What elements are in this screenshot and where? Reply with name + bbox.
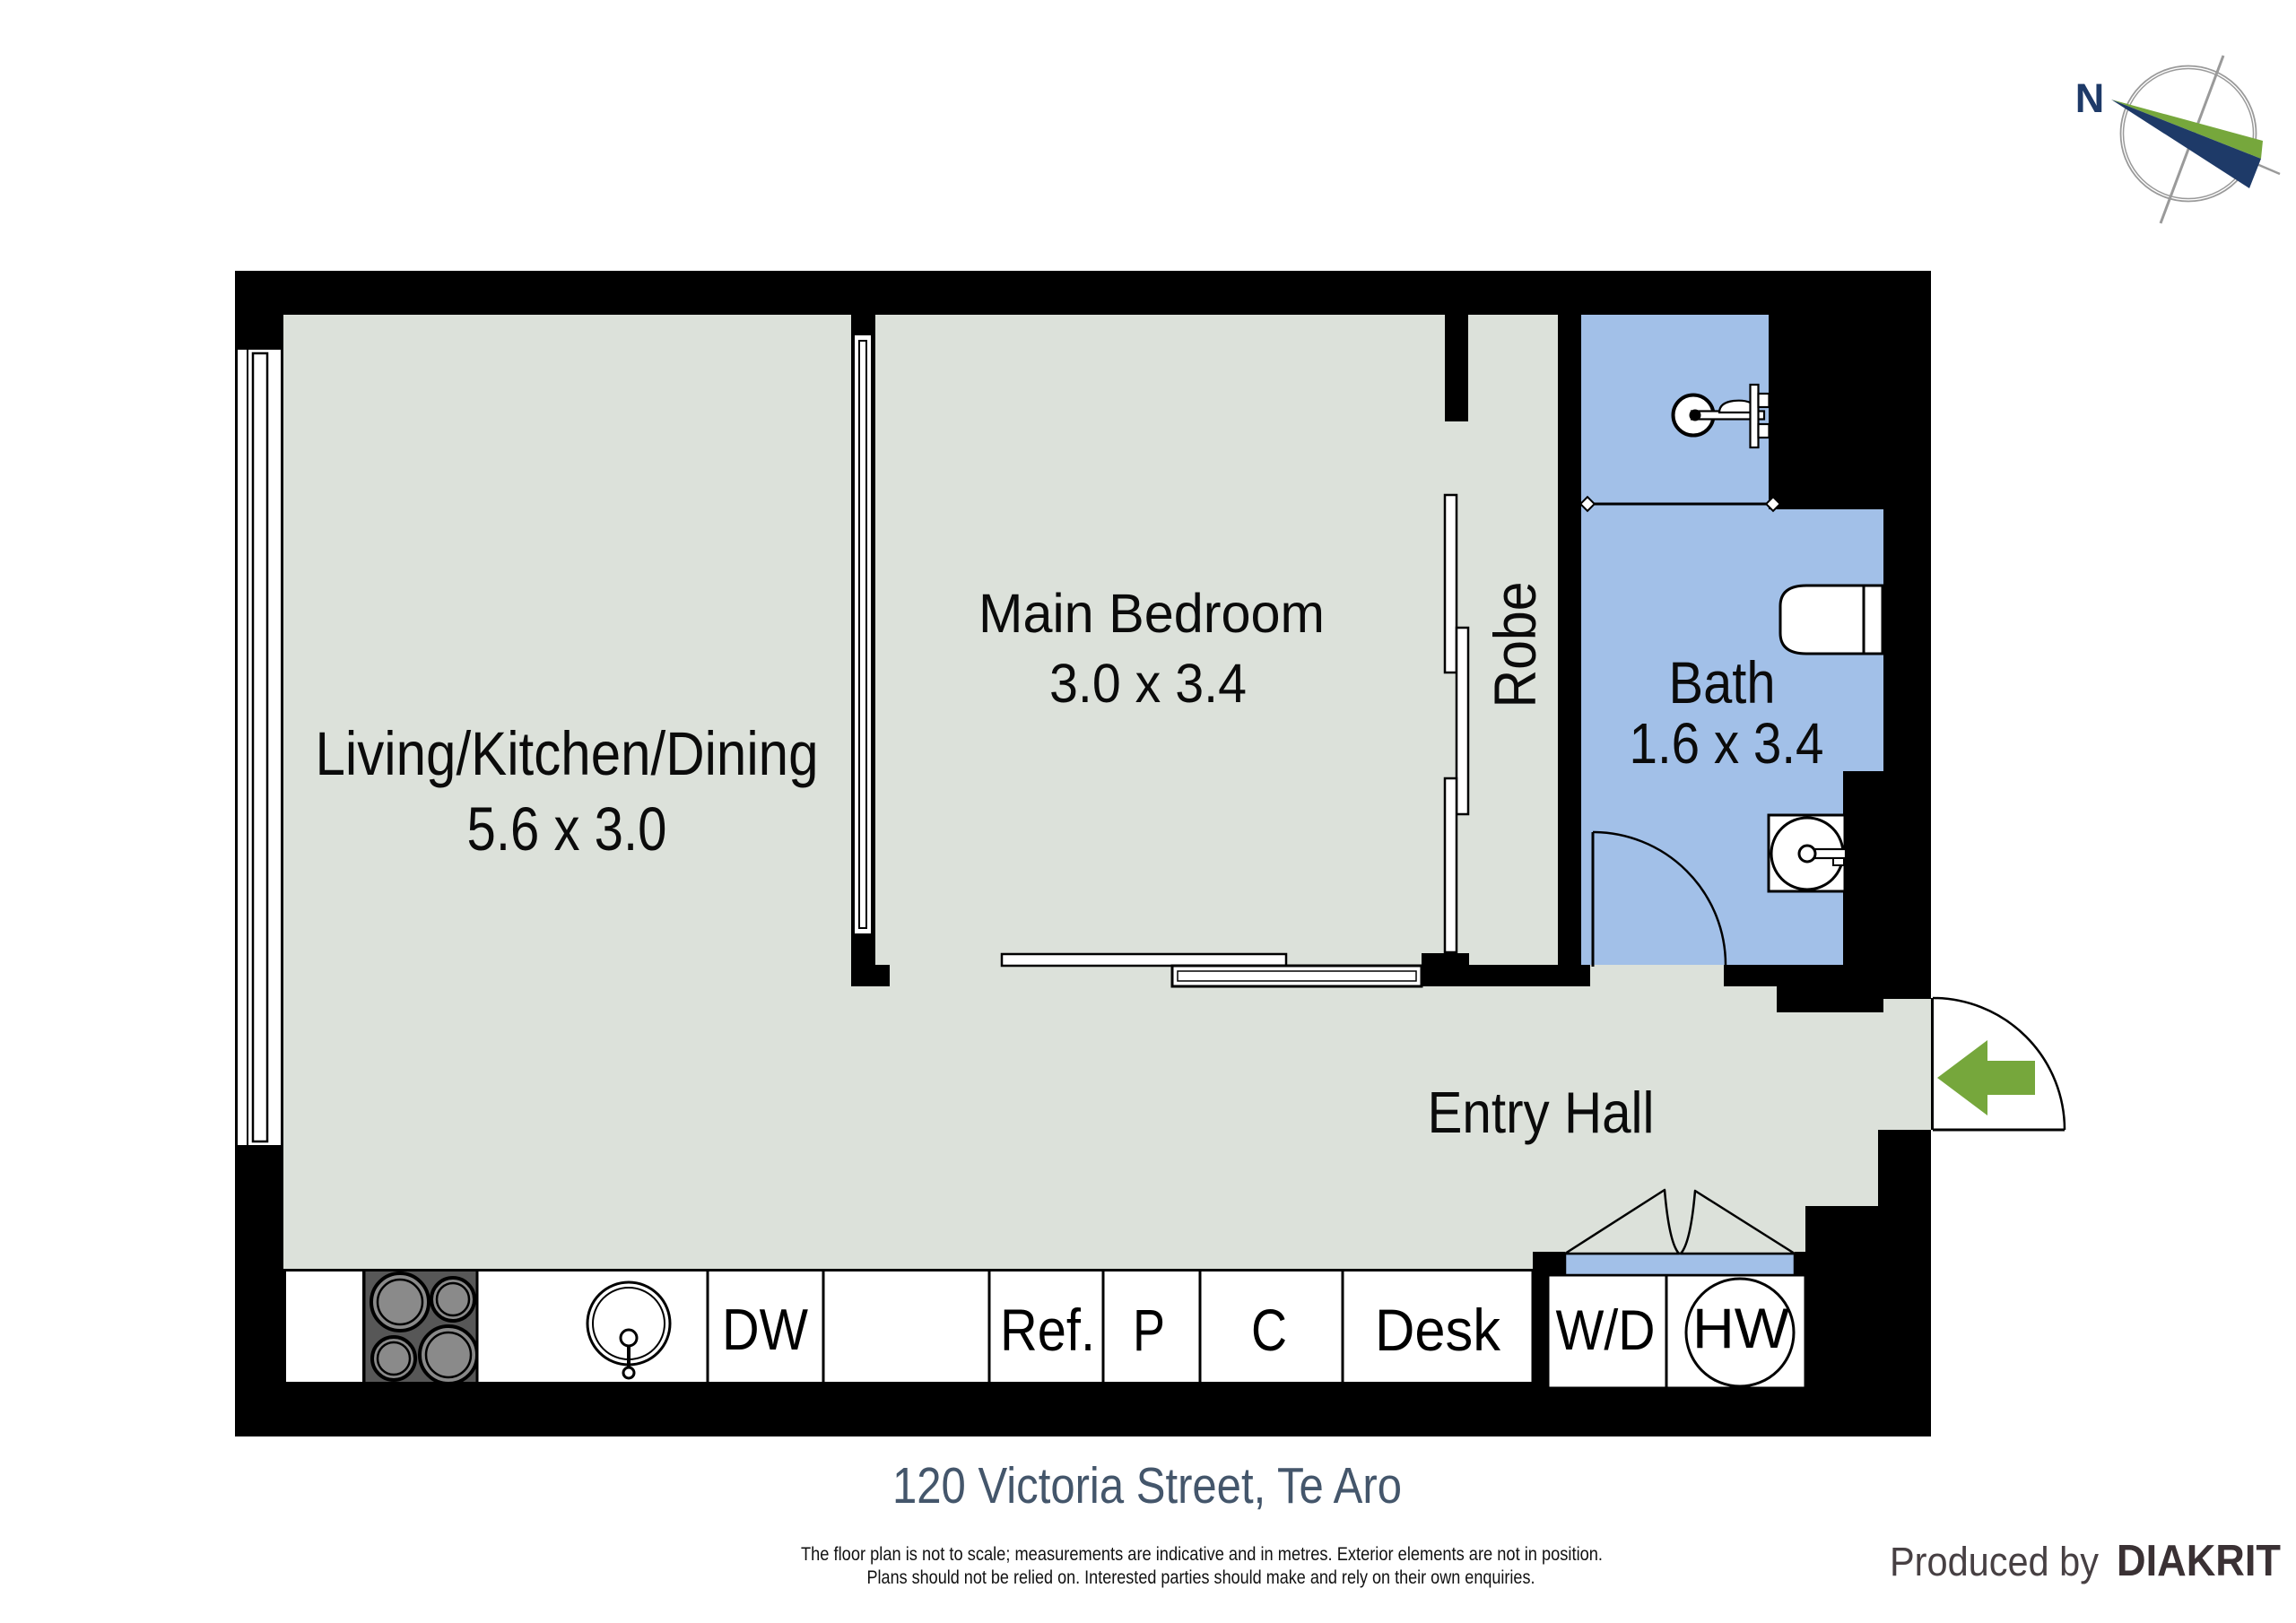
svg-text:1.6 x 3.4: 1.6 x 3.4 (1630, 711, 1824, 776)
svg-text:Produced by: Produced by (1890, 1539, 2099, 1584)
svg-text:DIAKRIT: DIAKRIT (2117, 1537, 2281, 1585)
svg-text:Plans should not be relied on.: Plans should not be relied on. Intereste… (867, 1567, 1535, 1588)
svg-text:C: C (1251, 1297, 1287, 1363)
svg-text:5.6 x 3.0: 5.6 x 3.0 (467, 794, 667, 864)
svg-text:Ref.: Ref. (1000, 1297, 1095, 1363)
svg-text:Main Bedroom: Main Bedroom (978, 583, 1325, 644)
svg-text:DW: DW (722, 1297, 809, 1362)
svg-text:P: P (1133, 1297, 1165, 1363)
svg-text:The floor plan is not to scale: The floor plan is not to scale; measurem… (801, 1543, 1603, 1565)
svg-text:Entry Hall: Entry Hall (1428, 1080, 1655, 1145)
svg-text:Desk: Desk (1375, 1297, 1501, 1363)
svg-text:120 Victoria Street, Te Aro: 120 Victoria Street, Te Aro (892, 1457, 1402, 1515)
svg-text:3.0 x 3.4: 3.0 x 3.4 (1049, 653, 1247, 714)
svg-text:Robe: Robe (1482, 582, 1548, 708)
svg-text:HW: HW (1692, 1298, 1790, 1360)
svg-text:N: N (2075, 75, 2105, 121)
svg-text:Bath: Bath (1669, 649, 1776, 716)
svg-text:Living/Kitchen/Dining: Living/Kitchen/Dining (316, 719, 819, 788)
svg-text:W/D: W/D (1556, 1299, 1656, 1362)
